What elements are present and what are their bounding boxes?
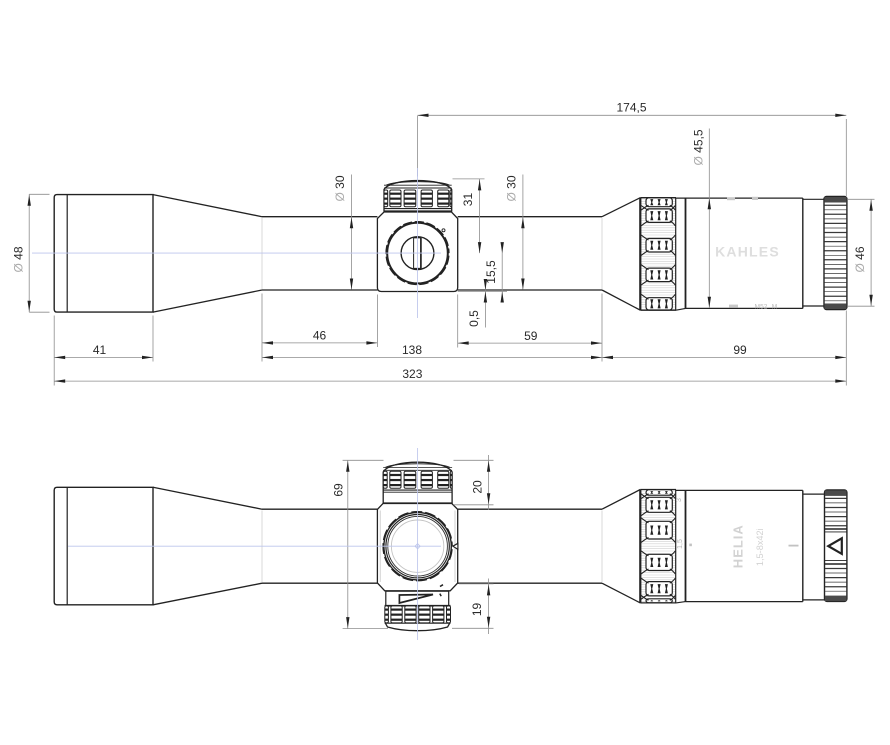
svg-text:Ø 45,5: Ø 45,5: [691, 129, 705, 165]
svg-text:KAHLES: KAHLES: [715, 244, 780, 260]
svg-text:Ø 30: Ø 30: [333, 175, 347, 201]
svg-text:59: 59: [524, 329, 538, 343]
svg-text:1,5-8x42i: 1,5-8x42i: [755, 528, 765, 566]
svg-text:31: 31: [461, 193, 475, 207]
svg-text:20: 20: [470, 480, 484, 494]
svg-text:1,5: 1,5: [677, 539, 684, 549]
svg-text:69: 69: [331, 483, 345, 497]
svg-text:Ø 48: Ø 48: [11, 246, 25, 272]
svg-text:174,5: 174,5: [616, 101, 646, 115]
svg-text:138: 138: [402, 343, 422, 357]
svg-text:0,5: 0,5: [467, 310, 481, 327]
svg-text:46: 46: [313, 329, 327, 343]
svg-text:Ø 46: Ø 46: [853, 246, 867, 272]
svg-text:Ø 30: Ø 30: [505, 175, 519, 201]
svg-text:323: 323: [402, 367, 422, 381]
svg-text:41: 41: [93, 343, 107, 357]
svg-text:HELIA: HELIA: [731, 524, 746, 568]
svg-text:19: 19: [470, 603, 484, 617]
svg-text:M: M: [772, 303, 777, 310]
svg-text:99: 99: [733, 343, 747, 357]
svg-text:M52: M52: [755, 303, 768, 310]
svg-text:3: 3: [676, 498, 683, 502]
